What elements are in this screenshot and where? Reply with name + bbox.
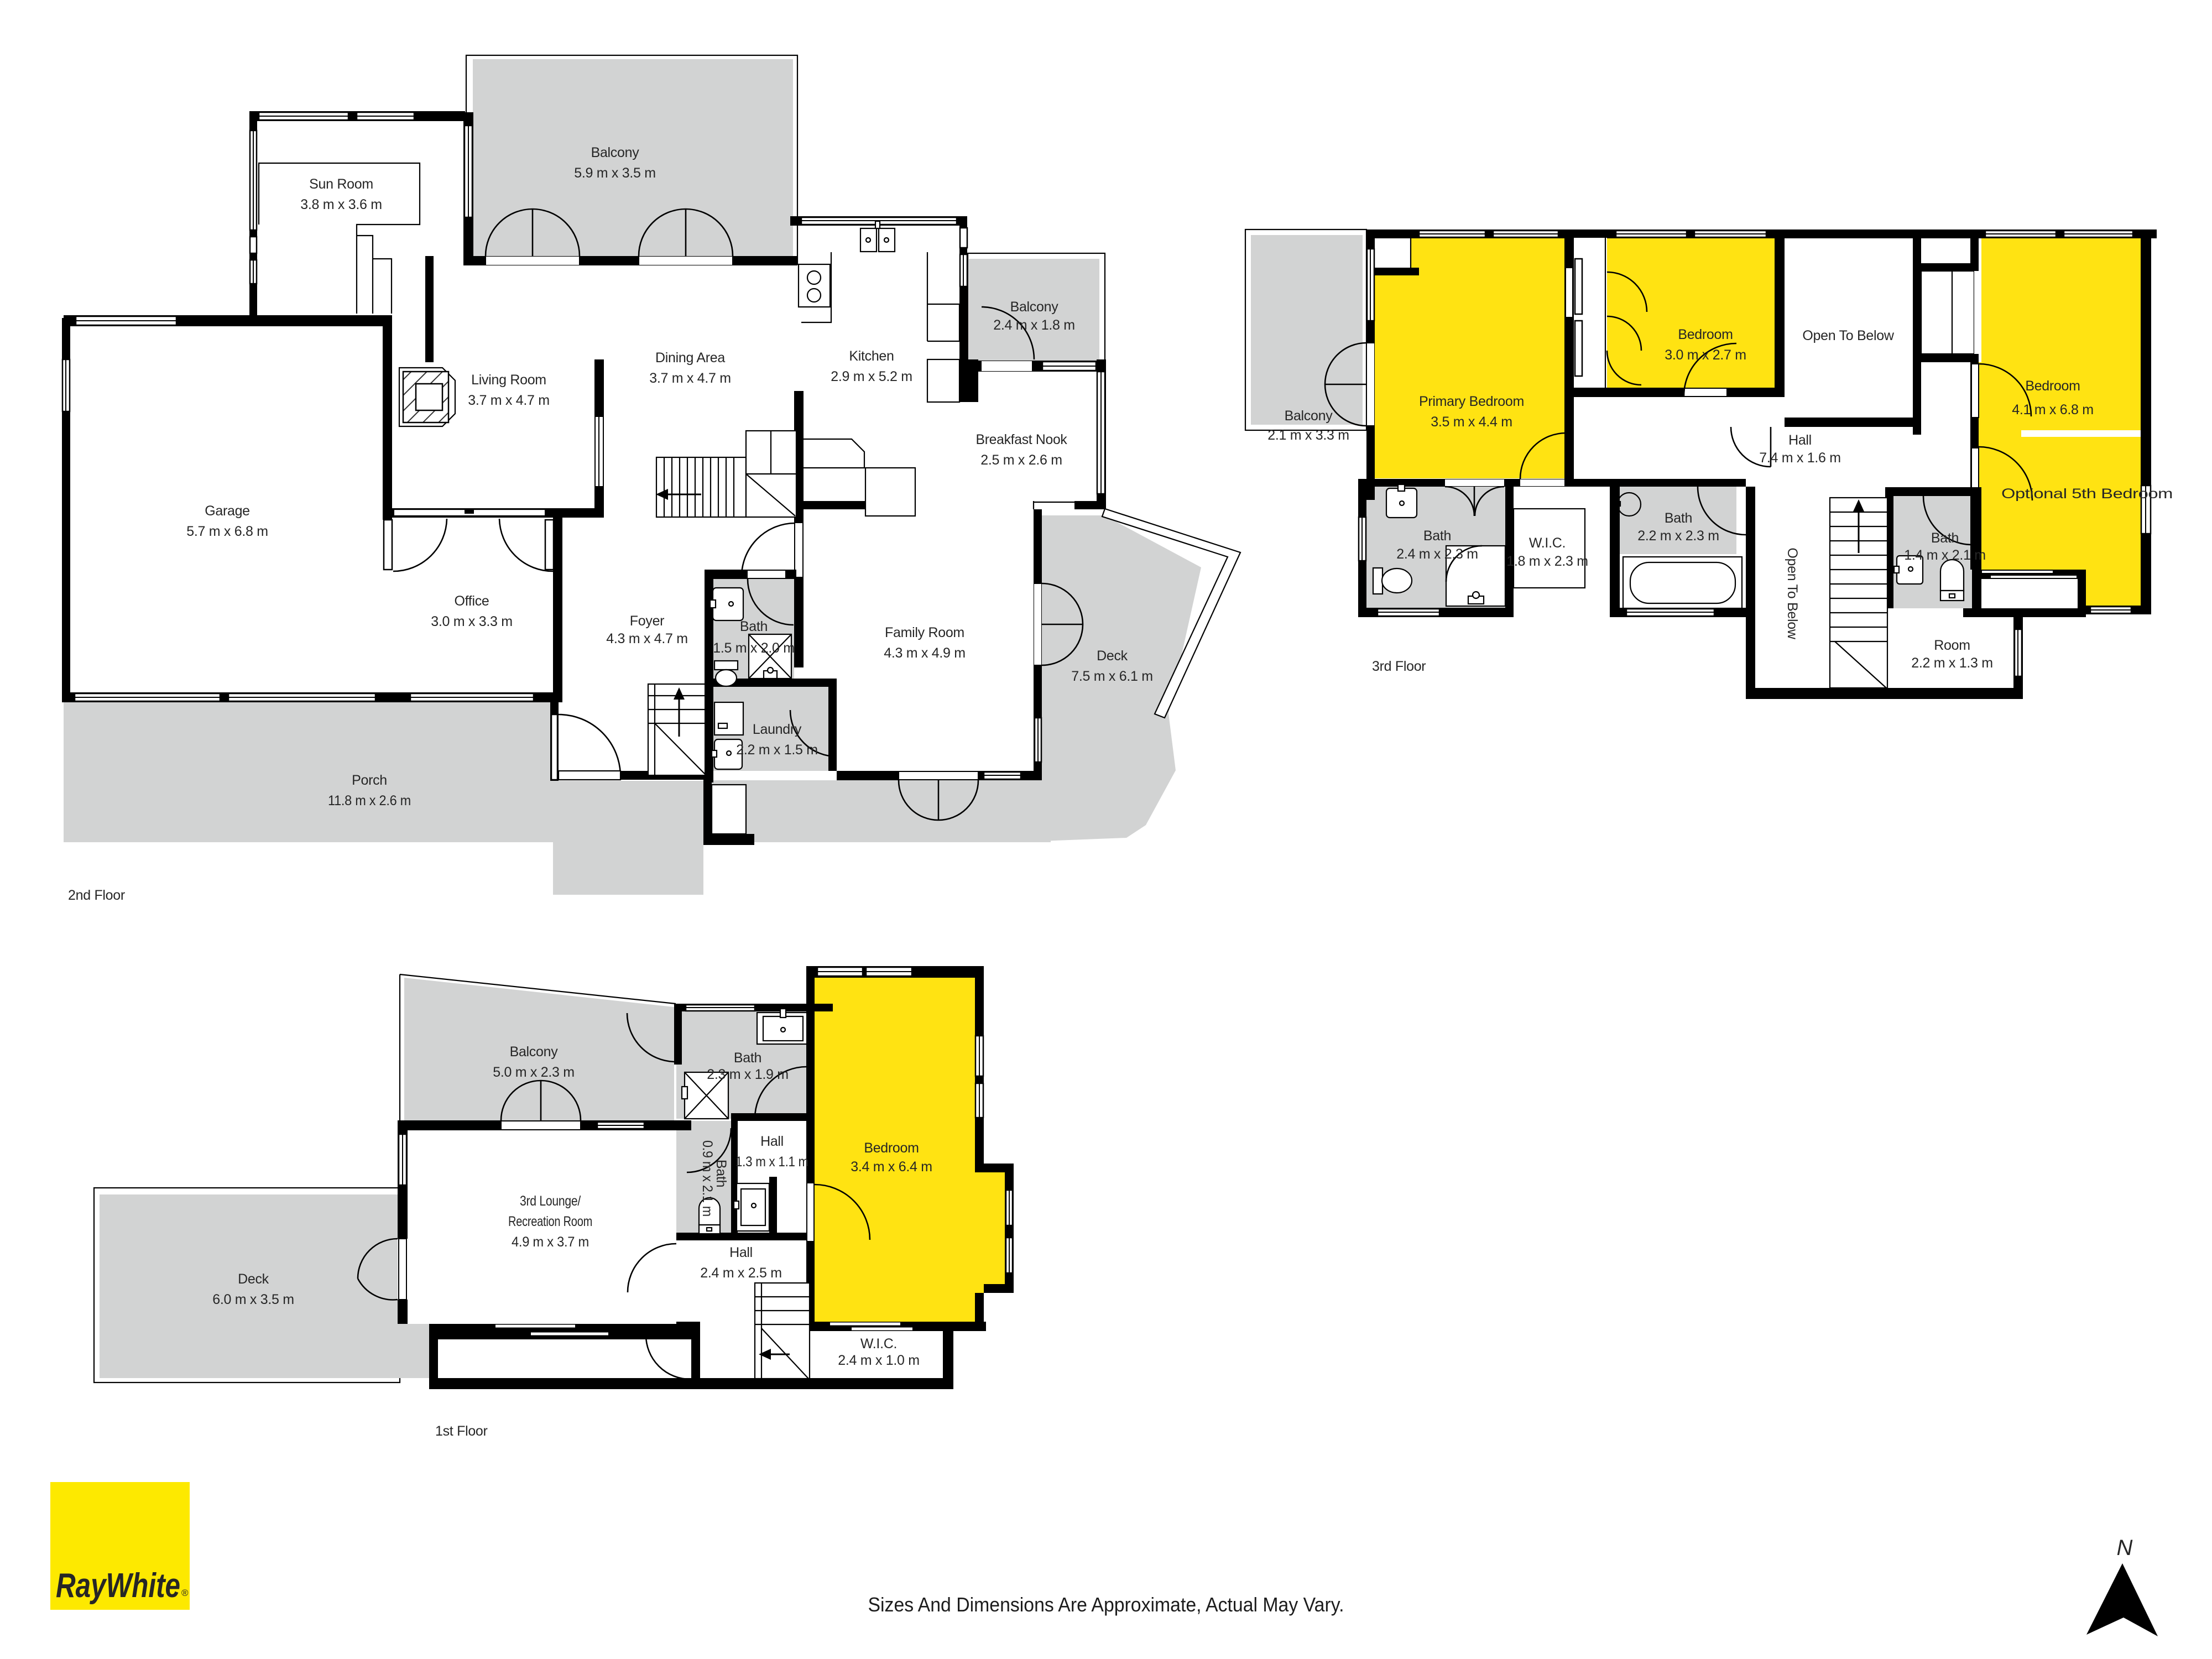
svg-text:2.5 m x 2.6 m: 2.5 m x 2.6 m (980, 452, 1062, 468)
svg-text:Deck: Deck (238, 1271, 269, 1287)
svg-text:Open To Below: Open To Below (1785, 547, 1800, 639)
svg-text:Bath: Bath (1665, 510, 1692, 526)
svg-text:1.5 m x 2.0 m: 1.5 m x 2.0 m (713, 640, 795, 656)
svg-text:11.8 m x 2.6 m: 11.8 m x 2.6 m (328, 793, 411, 808)
svg-text:Sun Room: Sun Room (309, 176, 373, 192)
svg-text:2.4 m x 2.5 m: 2.4 m x 2.5 m (700, 1265, 782, 1281)
svg-text:Hall: Hall (729, 1245, 753, 1260)
svg-text:Bath: Bath (1423, 528, 1451, 544)
svg-text:3.0 m x 3.3 m: 3.0 m x 3.3 m (431, 614, 513, 629)
svg-text:Office: Office (454, 593, 489, 609)
svg-text:Foyer: Foyer (630, 613, 664, 629)
svg-text:2nd Floor: 2nd Floor (68, 888, 125, 903)
svg-text:3.7 m x 4.7 m: 3.7 m x 4.7 m (468, 393, 550, 408)
svg-text:Balcony: Balcony (510, 1044, 559, 1060)
svg-text:2.3 m x 1.9 m: 2.3 m x 1.9 m (707, 1067, 789, 1082)
svg-text:Garage: Garage (205, 503, 250, 519)
svg-text:Family Room: Family Room (885, 625, 964, 640)
svg-text:Laundry: Laundry (753, 722, 802, 737)
svg-text:7.5 m x 6.1 m: 7.5 m x 6.1 m (1071, 669, 1153, 684)
svg-text:Porch: Porch (352, 773, 387, 788)
svg-text:Breakfast Nook: Breakfast Nook (976, 432, 1068, 447)
svg-text:Primary Bedroom: Primary Bedroom (1419, 394, 1524, 409)
svg-text:3rd Floor: 3rd Floor (1372, 659, 1426, 674)
svg-text:Living Room: Living Room (471, 372, 546, 388)
svg-text:1.8 m x 2.3 m: 1.8 m x 2.3 m (1506, 554, 1588, 569)
svg-text:4.3 m x 4.7 m: 4.3 m x 4.7 m (606, 631, 688, 646)
svg-text:Recreation Room: Recreation Room (508, 1214, 592, 1229)
svg-text:2.2 m x 1.5 m: 2.2 m x 1.5 m (736, 742, 818, 758)
svg-text:Balcony: Balcony (1010, 299, 1059, 315)
svg-text:3.4 m x 6.4 m: 3.4 m x 6.4 m (851, 1159, 932, 1175)
svg-text:1.4 m x 2.1 m: 1.4 m x 2.1 m (1904, 547, 1986, 563)
svg-text:Balcony: Balcony (591, 145, 640, 160)
svg-text:Open To Below: Open To Below (1802, 328, 1894, 343)
svg-text:2.4 m x 2.3 m: 2.4 m x 2.3 m (1396, 546, 1478, 562)
svg-text:6.0 m x 3.5 m: 6.0 m x 3.5 m (212, 1292, 294, 1307)
svg-text:1.3 m x 1.1 m: 1.3 m x 1.1 m (735, 1154, 808, 1170)
svg-text:Dining Area: Dining Area (655, 350, 725, 366)
svg-text:Bath: Bath (734, 1050, 761, 1066)
svg-text:3.7 m x 4.7 m: 3.7 m x 4.7 m (649, 371, 731, 386)
svg-text:Bath: Bath (740, 619, 768, 634)
svg-text:Optional 5th Bedroom: Optional 5th Bedroom (2001, 486, 2173, 502)
svg-text:5.7 m x 6.8 m: 5.7 m x 6.8 m (186, 524, 268, 539)
svg-text:5.0 m x 2.3 m: 5.0 m x 2.3 m (493, 1065, 575, 1080)
svg-text:7.4 m x 1.6 m: 7.4 m x 1.6 m (1759, 450, 1841, 466)
svg-text:W.I.C.: W.I.C. (860, 1336, 897, 1352)
svg-text:3.8 m x 3.6 m: 3.8 m x 3.6 m (300, 197, 382, 212)
svg-text:2.1 m x 3.3 m: 2.1 m x 3.3 m (1267, 427, 1349, 443)
svg-text:Bedroom: Bedroom (2025, 378, 2080, 394)
svg-text:Balcony: Balcony (1285, 408, 1333, 424)
svg-text:Hall: Hall (760, 1134, 784, 1149)
svg-text:Bath: Bath (713, 1160, 729, 1187)
svg-text:3.5 m x 4.4 m: 3.5 m x 4.4 m (1431, 414, 1512, 430)
svg-text:Sizes And Dimensions Are Appro: Sizes And Dimensions Are Approximate, Ac… (868, 1593, 1344, 1616)
svg-text:W.I.C.: W.I.C. (1529, 535, 1566, 551)
svg-text:RayWhite: RayWhite (56, 1567, 180, 1605)
svg-text:4.9 m x 3.7 m: 4.9 m x 3.7 m (512, 1234, 589, 1250)
svg-text:Bath: Bath (1931, 530, 1959, 546)
svg-text:2.2 m x 1.3 m: 2.2 m x 1.3 m (1911, 655, 1993, 671)
svg-text:4.3 m x 4.9 m: 4.3 m x 4.9 m (884, 645, 966, 661)
svg-text:Room: Room (1934, 638, 1970, 653)
svg-text:4.1 m x 6.8 m: 4.1 m x 6.8 m (2012, 402, 2094, 418)
svg-text:Bedroom: Bedroom (864, 1140, 919, 1156)
svg-text:2.4 m x 1.8 m: 2.4 m x 1.8 m (993, 317, 1075, 333)
svg-text:Deck: Deck (1097, 648, 1128, 664)
svg-text:1st Floor: 1st Floor (435, 1423, 488, 1439)
svg-text:2.9 m x 5.2 m: 2.9 m x 5.2 m (831, 369, 912, 384)
svg-text:2.2 m x 2.3 m: 2.2 m x 2.3 m (1637, 528, 1719, 544)
svg-text:3rd Lounge/: 3rd Lounge/ (520, 1193, 581, 1209)
svg-text:3.0 m x 2.7 m: 3.0 m x 2.7 m (1665, 347, 1746, 363)
svg-text:Bedroom: Bedroom (1678, 327, 1733, 342)
svg-text:2.4 m x 1.0 m: 2.4 m x 1.0 m (838, 1353, 920, 1368)
svg-text:5.9 m x 3.5 m: 5.9 m x 3.5 m (574, 165, 656, 181)
svg-text:N: N (2117, 1536, 2133, 1560)
svg-text:®: ® (181, 1588, 189, 1598)
svg-text:Hall: Hall (1788, 432, 1812, 448)
svg-text:Kitchen: Kitchen (849, 348, 894, 364)
svg-text:0.9 m x 2.1 m: 0.9 m x 2.1 m (700, 1140, 715, 1217)
